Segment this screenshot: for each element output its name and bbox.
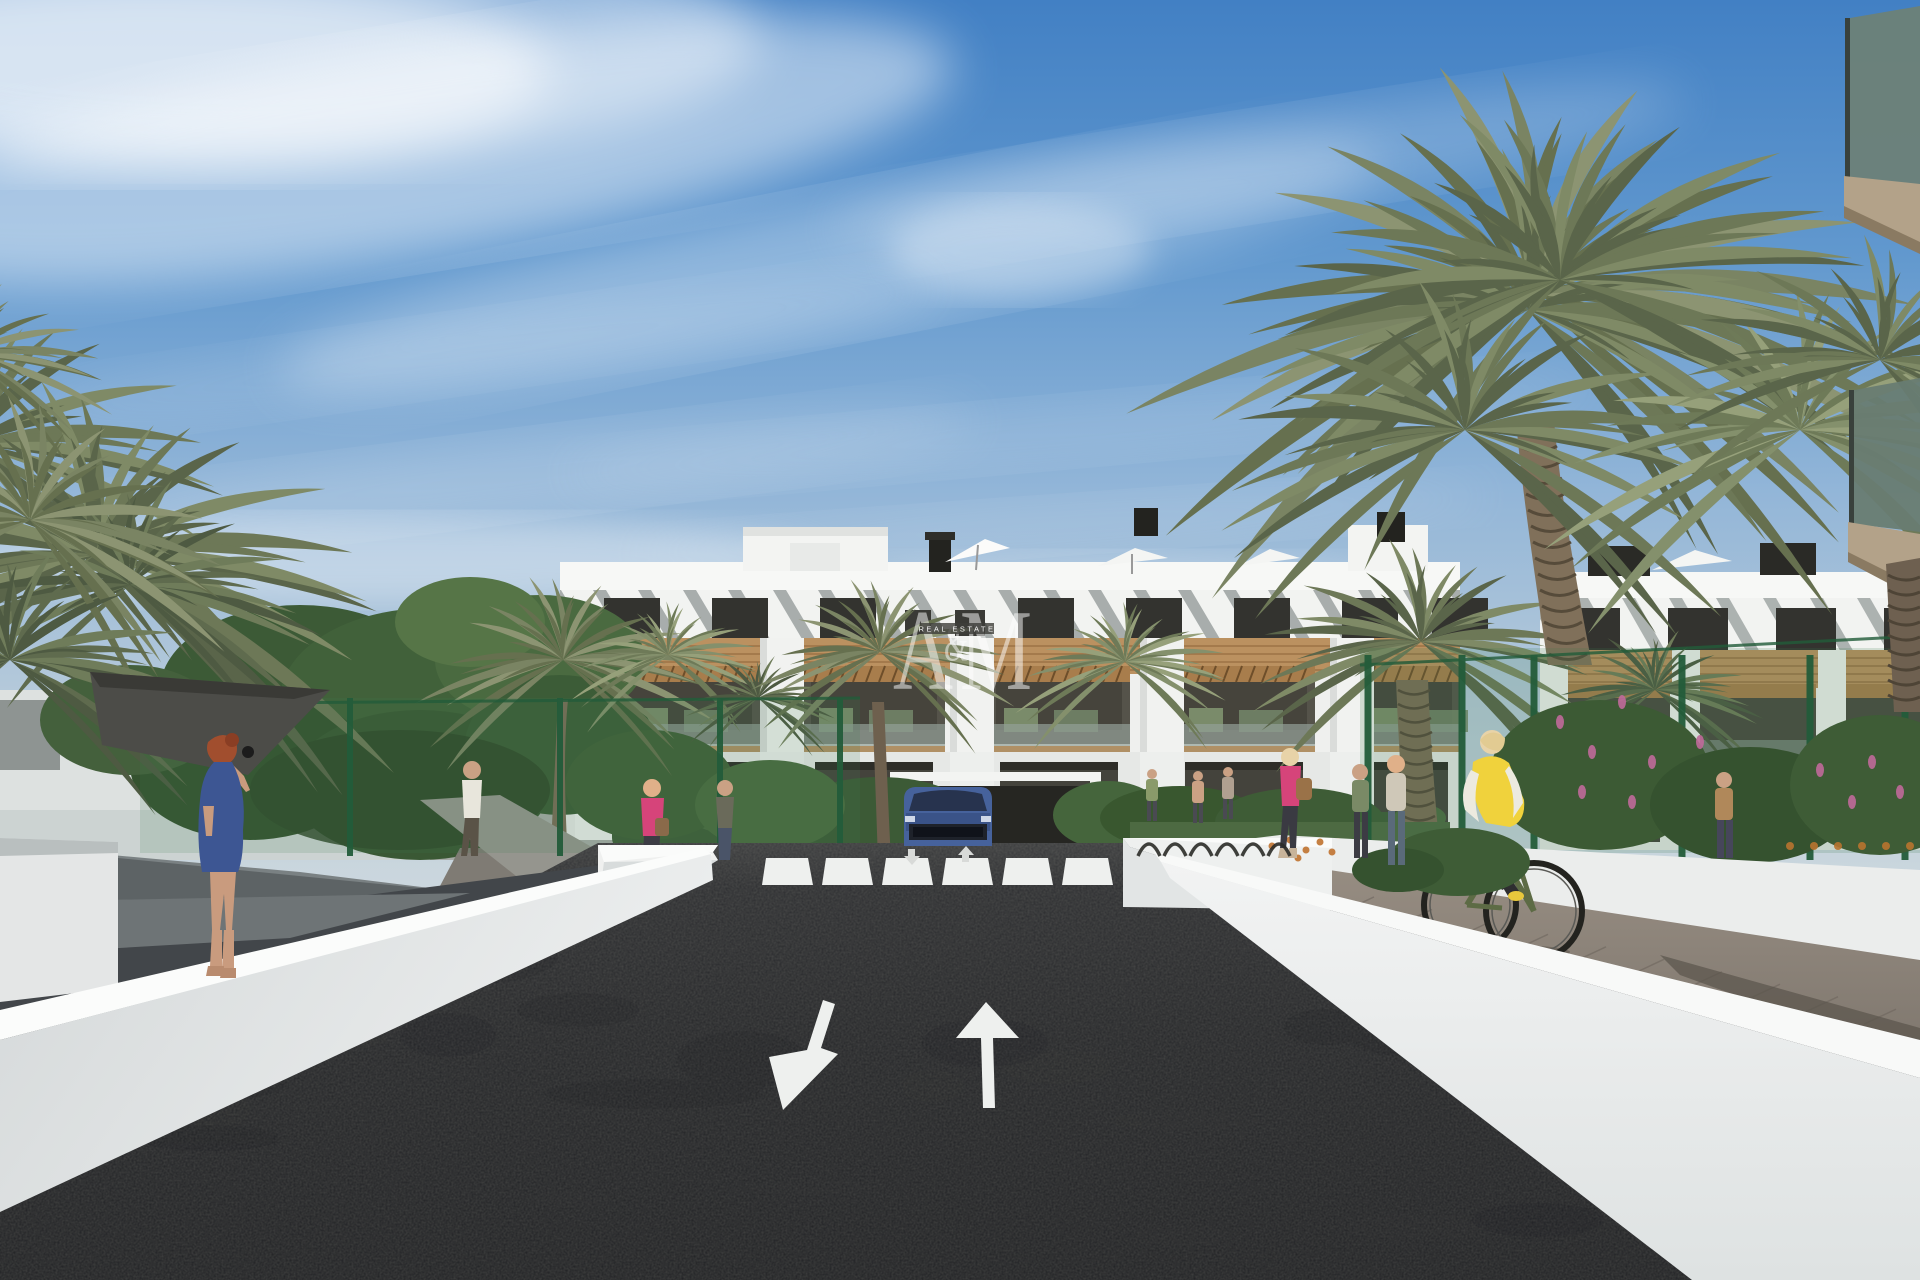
svg-text:M: M <box>960 587 1032 715</box>
svg-text:REAL ESTATE: REAL ESTATE <box>919 625 996 634</box>
